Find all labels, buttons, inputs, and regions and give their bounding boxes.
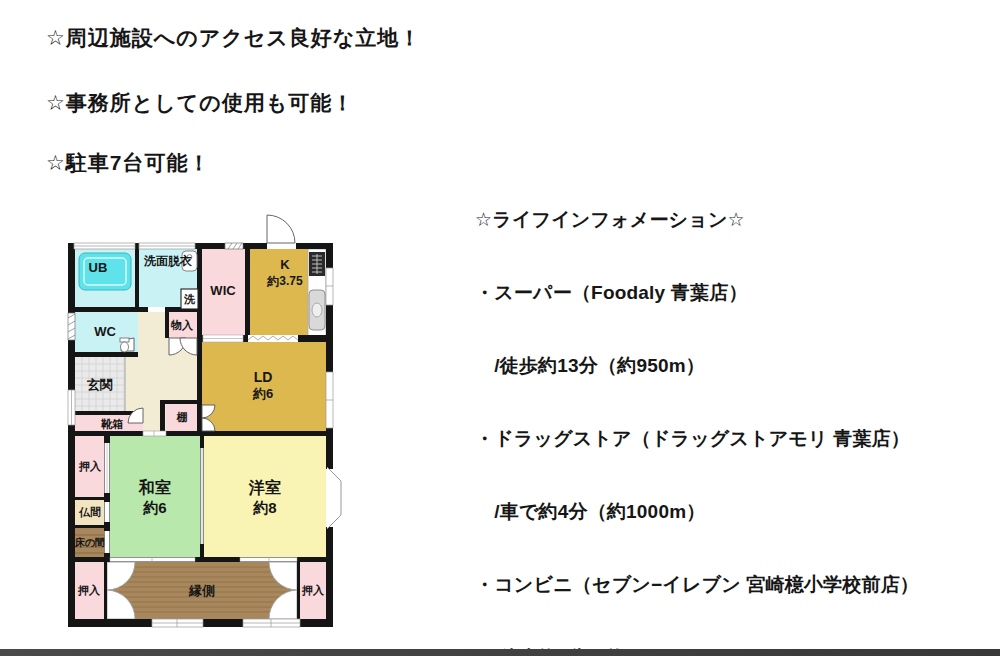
life-information-title: ☆ライフインフォメーション☆	[475, 208, 919, 232]
label-oshiire-1: 押入	[78, 460, 102, 473]
label-oshiire-3: 押入	[301, 584, 325, 597]
label-ub: UB	[89, 260, 108, 275]
label-tokonoma: 床の間	[74, 537, 105, 548]
facility-distance: /徒歩約13分（約950m）	[475, 354, 919, 378]
label-ld: LD	[254, 369, 273, 385]
label-wc: WC	[94, 324, 116, 339]
label-youshitsu: 洋室	[248, 478, 281, 496]
label-senmen: 洗面脱衣	[143, 254, 192, 268]
label-kutsubako: 靴箱	[101, 418, 123, 430]
label-washitsu: 和室	[138, 478, 171, 496]
life-information-list: ☆ライフインフォメーション☆ ・スーパー（Foodaly 青葉店） /徒歩約13…	[475, 159, 919, 656]
toilet-icon	[120, 338, 129, 342]
headline-access: ☆周辺施設へのアクセス良好な立地！	[46, 24, 421, 52]
bay-window	[327, 467, 341, 529]
kitchen-entry-door	[267, 215, 295, 243]
label-engawa: 縁側	[188, 583, 215, 598]
room-washitsu	[110, 436, 200, 557]
label-ld-size: 約6	[252, 386, 273, 401]
facility-name: ・ドラッグストア（ドラッグストアモリ 青葉店）	[475, 427, 919, 451]
headline-office-use: ☆事務所としての使用も可能！	[46, 89, 354, 117]
bottom-border-bar	[0, 649, 1000, 656]
facility-name: ・スーパー（Foodaly 青葉店）	[475, 281, 919, 305]
facility-name: ・コンビニ（セブン−イレブン 宮崎檍小学校前店）	[475, 573, 919, 597]
label-laundry: 洗	[183, 293, 196, 305]
label-oshiire-2: 押入	[77, 584, 101, 597]
label-wic: WIC	[210, 283, 236, 298]
label-genkan: 玄関	[86, 377, 113, 392]
floor-plan: UB 洗面脱衣 洗 WIC K 約3.75 WC 物入 玄関 靴箱 棚 LD 約…	[60, 205, 352, 637]
label-kitchen-size: 約3.75	[266, 274, 303, 288]
label-butsuma: 仏間	[78, 506, 101, 518]
room-youshitsu	[204, 436, 326, 557]
label-kitchen: K	[280, 257, 290, 272]
label-monoire: 物入	[170, 319, 194, 332]
label-washitsu-size: 約6	[142, 499, 166, 516]
headline-parking: ☆駐車7台可能！	[46, 149, 211, 177]
label-youshitsu-size: 約8	[252, 499, 276, 516]
label-tana: 棚	[176, 411, 188, 423]
facility-distance: /車で約4分（約1000m）	[475, 500, 919, 524]
